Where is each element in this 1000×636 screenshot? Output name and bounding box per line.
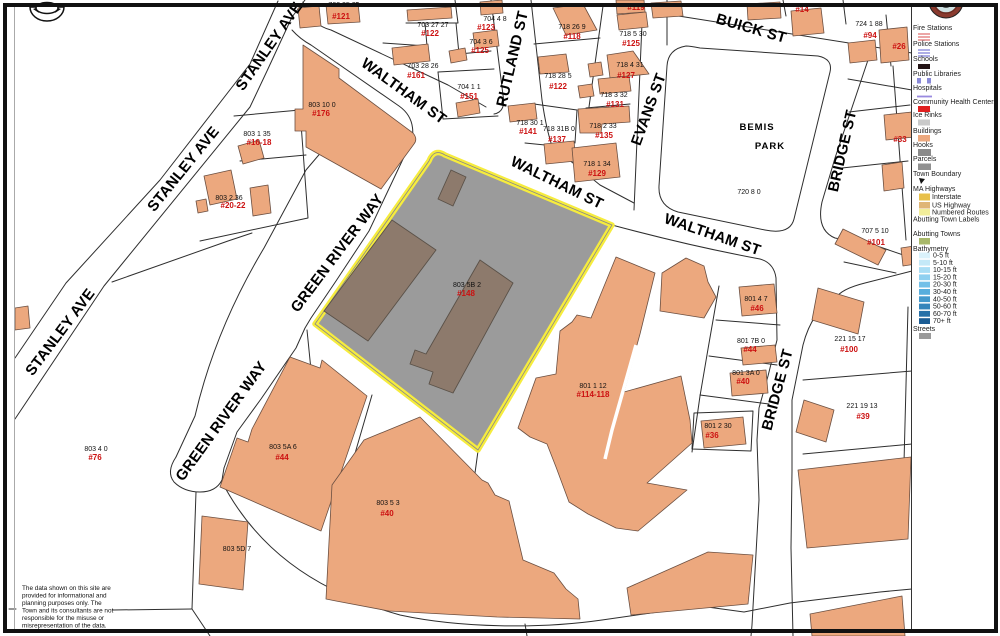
svg-text:5-10 ft: 5-10 ft [933, 260, 953, 267]
svg-text:planning purposes only. The: planning purposes only. The [22, 600, 102, 607]
svg-text:50-60 ft: 50-60 ft [933, 304, 957, 311]
svg-text:803 5 3: 803 5 3 [376, 500, 399, 507]
svg-text:Parcels: Parcels [913, 156, 937, 163]
svg-text:#26: #26 [892, 42, 906, 51]
svg-text:Community Health Centers: Community Health Centers [913, 99, 998, 106]
svg-text:#46: #46 [750, 304, 764, 313]
svg-text:803 5D 7: 803 5D 7 [223, 546, 252, 553]
svg-text:10-15 ft: 10-15 ft [933, 267, 957, 274]
svg-text:#40: #40 [736, 377, 750, 386]
svg-text:#161: #161 [407, 71, 425, 80]
svg-text:704 4 8: 704 4 8 [483, 16, 506, 23]
svg-text:#40: #40 [380, 509, 394, 518]
svg-text:718 30 1: 718 30 1 [516, 120, 543, 127]
svg-text:Interstate: Interstate [932, 194, 961, 201]
svg-text:#39: #39 [856, 412, 870, 421]
svg-text:60-70 ft: 60-70 ft [933, 311, 957, 318]
svg-text:#118: #118 [563, 32, 581, 41]
svg-text:#137: #137 [548, 135, 566, 144]
svg-text:#16-18: #16-18 [247, 138, 272, 147]
svg-text:718 28 5: 718 28 5 [544, 73, 571, 80]
svg-text:#151: #151 [460, 92, 478, 101]
svg-text:718 2 33: 718 2 33 [589, 123, 616, 130]
svg-text:718 4 31: 718 4 31 [616, 62, 643, 69]
svg-text:0-5 ft: 0-5 ft [933, 253, 949, 260]
svg-text:703 28 26: 703 28 26 [407, 63, 438, 70]
svg-text:Abutting Town Labels: Abutting Town Labels [913, 217, 980, 224]
svg-text:#122: #122 [549, 82, 567, 91]
svg-text:#122: #122 [421, 29, 439, 38]
svg-text:Buildings: Buildings [913, 128, 942, 135]
svg-text:803 4 0: 803 4 0 [84, 446, 107, 453]
svg-text:718 26 9: 718 26 9 [558, 24, 585, 31]
svg-text:Police Stations: Police Stations [913, 41, 960, 48]
svg-text:803 5B 2: 803 5B 2 [453, 282, 481, 289]
svg-text:#141: #141 [519, 127, 537, 136]
svg-text:15-20 ft: 15-20 ft [933, 274, 957, 281]
svg-text:718 5 30: 718 5 30 [619, 31, 646, 38]
svg-text:70+ ft: 70+ ft [933, 318, 951, 325]
svg-text:801 4 7: 801 4 7 [744, 296, 767, 303]
svg-text:801 2 30: 801 2 30 [704, 423, 731, 430]
svg-text:Hospitals: Hospitals [913, 85, 942, 92]
svg-text:BEMIS: BEMIS [739, 122, 774, 133]
svg-text:Streets: Streets [913, 326, 936, 333]
svg-text:803 1 35: 803 1 35 [243, 131, 270, 138]
svg-text:provided for informational and: provided for informational and [22, 593, 107, 600]
svg-text:801 7B 0: 801 7B 0 [737, 338, 765, 345]
svg-text:801 1 12: 801 1 12 [579, 383, 606, 390]
svg-text:Town Boundary: Town Boundary [913, 171, 962, 178]
svg-text:703 27 27: 703 27 27 [417, 22, 448, 29]
svg-text:801 3A 0: 801 3A 0 [732, 370, 760, 377]
svg-text:PARK: PARK [755, 141, 785, 152]
svg-text:704 3 6: 704 3 6 [469, 39, 492, 46]
svg-text:#33: #33 [893, 135, 907, 144]
svg-text:221 19 13: 221 19 13 [846, 403, 877, 410]
svg-text:Abutting Towns: Abutting Towns [913, 231, 961, 238]
svg-text:704 1 1: 704 1 1 [457, 84, 480, 91]
svg-text:20-30 ft: 20-30 ft [933, 282, 957, 289]
svg-text:#76: #76 [88, 453, 102, 462]
svg-text:Town and its consultants are n: Town and its consultants are not [22, 608, 114, 615]
svg-text:803 5A 6: 803 5A 6 [269, 444, 297, 451]
svg-text:Public Libraries: Public Libraries [913, 71, 961, 78]
svg-text:40-50 ft: 40-50 ft [933, 296, 957, 303]
svg-text:#36: #36 [705, 431, 719, 440]
svg-text:720 8 0: 720 8 0 [737, 189, 760, 196]
svg-text:718 1 34: 718 1 34 [583, 161, 610, 168]
svg-text:#131: #131 [606, 100, 624, 109]
svg-text:718 31B 0: 718 31B 0 [543, 126, 575, 133]
svg-text:718 3 32: 718 3 32 [600, 92, 627, 99]
svg-text:#148: #148 [457, 289, 475, 298]
svg-text:#127: #127 [617, 71, 635, 80]
svg-text:misrepresentation of the data.: misrepresentation of the data. [22, 623, 107, 630]
svg-text:Ice Rinks: Ice Rinks [913, 112, 942, 119]
svg-text:Fire Stations: Fire Stations [913, 25, 953, 32]
svg-text:Numbered Routes: Numbered Routes [932, 210, 989, 217]
svg-text:707 5 10: 707 5 10 [861, 228, 888, 235]
svg-text:#44: #44 [743, 345, 757, 354]
svg-text:#121: #121 [332, 12, 350, 21]
svg-text:#125: #125 [471, 46, 489, 55]
svg-text:#100: #100 [840, 345, 858, 354]
svg-text:#176: #176 [312, 109, 330, 118]
svg-text:#101: #101 [867, 238, 885, 247]
svg-text:#125: #125 [622, 39, 640, 48]
svg-text:#135: #135 [595, 131, 613, 140]
svg-text:#114-118: #114-118 [577, 390, 610, 399]
svg-text:221 15 17: 221 15 17 [834, 336, 865, 343]
svg-text:#44: #44 [275, 453, 289, 462]
svg-text:724 1 88: 724 1 88 [855, 21, 882, 28]
svg-text:US Highway: US Highway [932, 203, 971, 210]
svg-text:Schools: Schools [913, 56, 938, 63]
svg-text:30-40 ft: 30-40 ft [933, 289, 957, 296]
svg-text:#123: #123 [477, 23, 495, 32]
svg-text:#129: #129 [588, 169, 606, 178]
svg-text:The data shown on this site ar: The data shown on this site are [22, 585, 111, 592]
svg-text:responsible for the misuse or: responsible for the misuse or [22, 615, 105, 622]
svg-text:803 10 0: 803 10 0 [308, 102, 335, 109]
svg-text:#94: #94 [863, 31, 877, 40]
svg-text:#20-22: #20-22 [221, 201, 246, 210]
svg-text:Hooks: Hooks [913, 142, 933, 149]
svg-text:MA Highways: MA Highways [913, 186, 956, 193]
